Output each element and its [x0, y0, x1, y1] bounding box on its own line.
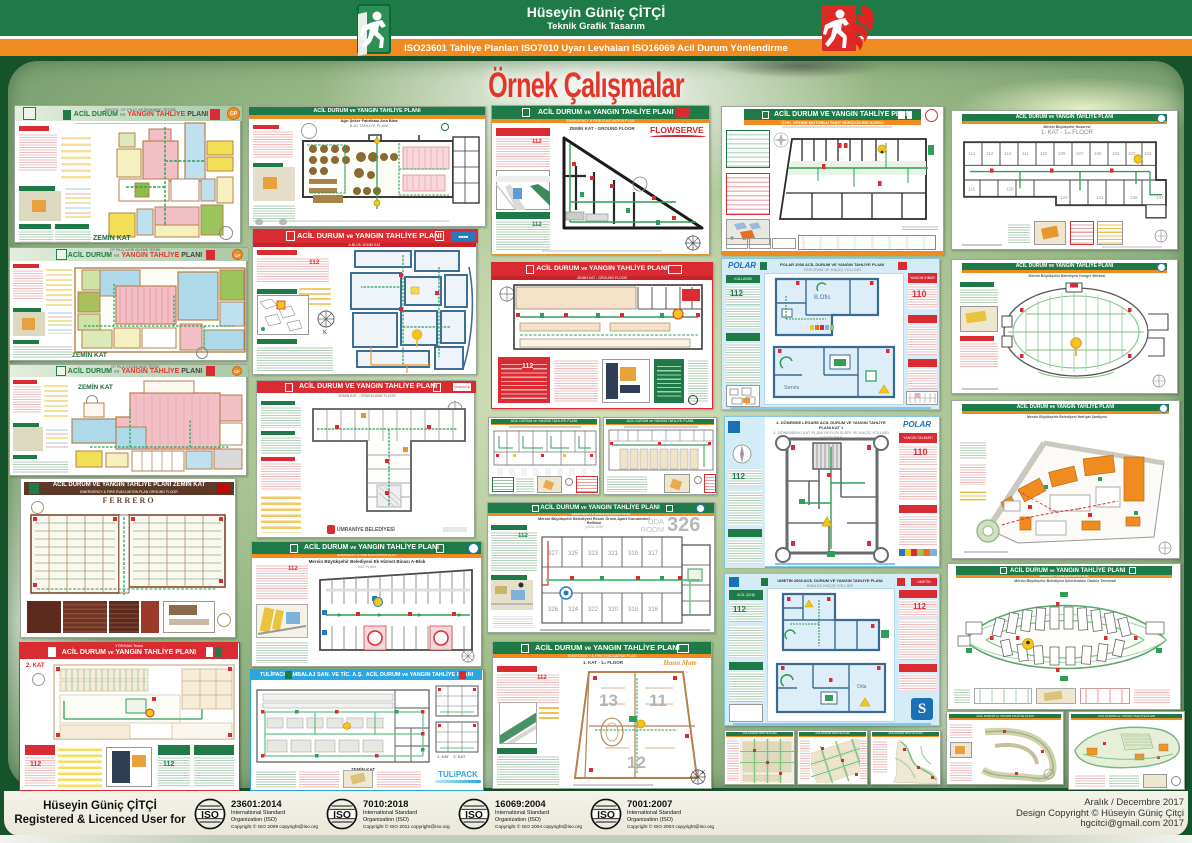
svg-text:ISO: ISO	[201, 810, 219, 821]
svg-text:116: 116	[968, 186, 976, 191]
svg-text:113: 113	[986, 151, 994, 156]
svg-text:137: 137	[1156, 195, 1164, 200]
svg-text:110: 110	[1040, 151, 1048, 156]
svg-text:112: 112	[1004, 151, 1012, 156]
svg-text:122: 122	[1060, 195, 1068, 200]
svg-text:11: 11	[649, 691, 667, 710]
svg-text:114: 114	[968, 151, 976, 156]
svg-text:102: 102	[1144, 151, 1152, 156]
svg-text:124: 124	[1096, 195, 1104, 200]
svg-text:120: 120	[1006, 186, 1014, 191]
svg-text:Oda: Oda	[857, 684, 867, 690]
svg-text:104: 104	[1112, 151, 1120, 156]
svg-text:126: 126	[1130, 195, 1138, 200]
svg-text:Servis: Servis	[784, 385, 800, 391]
svg-text:327: 327	[548, 551, 559, 557]
svg-text:324: 324	[568, 607, 579, 613]
svg-text:326: 326	[548, 607, 559, 613]
svg-text:109: 109	[1058, 151, 1066, 156]
svg-text:317: 317	[648, 551, 659, 557]
svg-text:ISO: ISO	[333, 810, 351, 821]
svg-text:13: 13	[599, 691, 618, 710]
svg-text:12: 12	[627, 753, 646, 772]
svg-text:K: K	[323, 330, 327, 335]
svg-text:325: 325	[568, 551, 579, 557]
svg-text:107: 107	[1076, 151, 1084, 156]
svg-text:321: 321	[608, 551, 619, 557]
svg-text:106: 106	[1094, 151, 1102, 156]
svg-text:318: 318	[628, 607, 639, 613]
svg-text:ISO: ISO	[597, 810, 615, 821]
svg-text:319: 319	[628, 551, 639, 557]
svg-text:103: 103	[1128, 151, 1136, 156]
svg-text:K: K	[702, 770, 706, 776]
svg-text:316: 316	[648, 607, 659, 613]
svg-text:111: 111	[1022, 151, 1029, 156]
svg-text:320: 320	[608, 607, 619, 613]
svg-text:ISO: ISO	[465, 810, 483, 821]
svg-text:323: 323	[588, 551, 599, 557]
svg-text:B.Ofis: B.Ofis	[814, 295, 830, 301]
svg-text:322: 322	[588, 607, 599, 613]
